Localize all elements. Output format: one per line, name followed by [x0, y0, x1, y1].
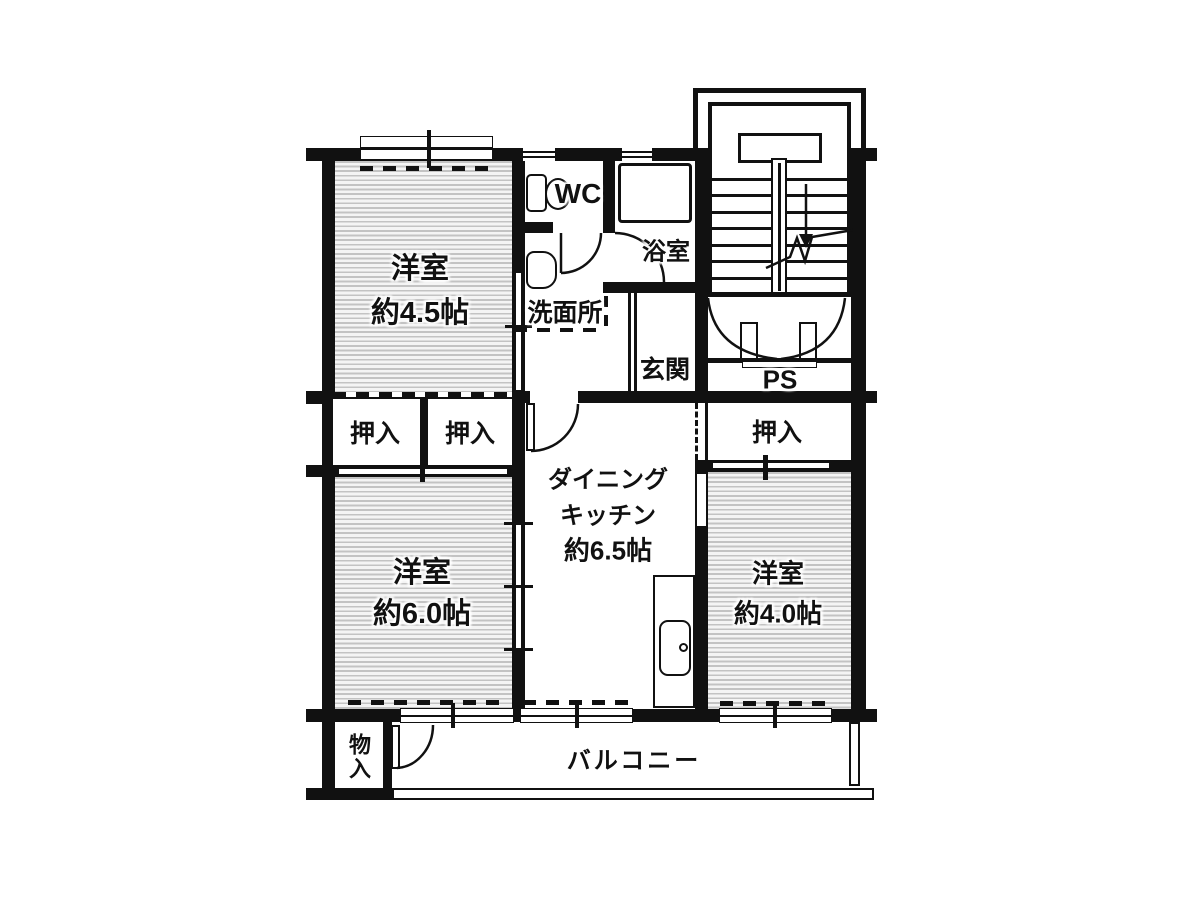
window-bedroom40-tick [773, 703, 777, 728]
bedroom-6-0-size: 約6.0帖 [373, 590, 471, 632]
window-bedroom60-tick [451, 703, 455, 728]
bedroom-4-5-label: 洋室 [391, 245, 449, 287]
stairwell-inner-right [847, 102, 851, 294]
wall-middle-left-stub [512, 391, 530, 403]
storage-door-leaf [391, 725, 400, 769]
closet-center-label: 押入 [445, 414, 495, 450]
dk-door-arc [531, 404, 578, 451]
entrance-hall-divider-line-a [628, 293, 631, 392]
closet-left-label: 押入 [350, 414, 400, 450]
bedroom-4-0-label: 洋室 [752, 554, 804, 591]
closet-divider-wall [420, 397, 428, 465]
storage-door-arc [397, 725, 433, 768]
sink-drain-icon [679, 643, 688, 652]
bedroom-6-0-label: 洋室 [393, 549, 451, 591]
stairwell-inner-left [708, 102, 712, 294]
entrance-door-right-leaf [799, 322, 817, 360]
stair-landing-edge [697, 292, 851, 297]
window-dk-tick [575, 703, 579, 728]
wall-storage-bottom [306, 788, 392, 800]
balcony-railing-right [849, 722, 860, 786]
wc-label: WC [555, 178, 602, 210]
stairwell-inner-top [708, 102, 851, 106]
balcony-railing-bottom [392, 788, 874, 800]
bathtub-icon [618, 163, 692, 223]
door-tick-bedroom60-top [504, 522, 533, 525]
wall-top-right-tab [866, 148, 877, 161]
dk-label-line2: キッチン [560, 496, 656, 531]
window-wc-line-a [523, 151, 555, 153]
floor-plan: 洋室 約4.5帖 WC 浴室 洗面所 玄関 PS 押入 押入 押入 ダイニング … [0, 0, 1200, 900]
stairwell-outer-top [693, 88, 866, 93]
wall-dk-bedroom40 [695, 528, 708, 709]
toilet-tank-icon [526, 174, 547, 212]
dashed-washroom-boundary-right [604, 296, 608, 332]
stair-center-rail-inner [778, 163, 781, 291]
window-bath-line-a [622, 151, 652, 153]
bath-label: 浴室 [642, 232, 690, 267]
dk-bedroom40-sliding-panel [695, 472, 708, 528]
door-tick-bedroom60-mid [504, 585, 533, 588]
wc-door-arc [561, 233, 601, 273]
entrance-hall-divider-line-b [634, 293, 637, 392]
window-wc-gap [523, 148, 555, 161]
dashed-line-bedroom60-bottom [348, 700, 508, 705]
balcony-label: バルコニー [567, 741, 702, 776]
dk-label-line1: ダイニング [548, 460, 668, 495]
closet-right-sliding-bar [712, 462, 830, 469]
dashed-line-bedroom40-bottom [720, 701, 832, 706]
closet-right-label: 押入 [752, 413, 802, 449]
window-bath-gap [622, 148, 652, 161]
dk-size: 約6.5帖 [564, 531, 652, 568]
bedroom-4-5-size: 約4.5帖 [371, 289, 469, 331]
window-bath-line-b [622, 156, 652, 158]
dk-door-leaf [526, 403, 535, 451]
stairwell-outer-right [861, 88, 866, 160]
closet-right-sliding-tick [763, 455, 768, 480]
wall-middle [578, 391, 877, 403]
wall-right [851, 148, 866, 722]
door-tick-bedroom60-bottom [504, 648, 533, 651]
dashed-fusuma-bedroom45-closets [333, 392, 512, 397]
window-bedroom60-midline [401, 715, 513, 717]
washroom-label: 洗面所 [527, 293, 602, 329]
bedroom-4-0-floor [708, 472, 851, 709]
dk-closet-dashed-partition [695, 403, 708, 460]
wall-bath-left-upper [603, 161, 615, 233]
entrance-label: 玄関 [640, 350, 690, 386]
pipe-space-label: PS [763, 365, 798, 396]
dashed-line-dk-bottom [523, 700, 631, 705]
bedroom-4-0-size: 約4.0帖 [734, 594, 822, 631]
wall-wc-bottom [512, 222, 553, 233]
wall-left-tab-middle [306, 391, 322, 404]
storage-label: 物入 [342, 733, 374, 781]
washbasin-icon [526, 251, 557, 289]
entrance-door-left-leaf [740, 322, 758, 360]
window-wc-line-b [523, 156, 555, 158]
dashed-line-bedroom45-top [360, 166, 492, 171]
wall-bath-bottom [603, 282, 697, 293]
stairwell-outer-left [693, 88, 698, 160]
window-bedroom45-tick [427, 130, 431, 168]
wall-stairwell-left [695, 148, 708, 403]
